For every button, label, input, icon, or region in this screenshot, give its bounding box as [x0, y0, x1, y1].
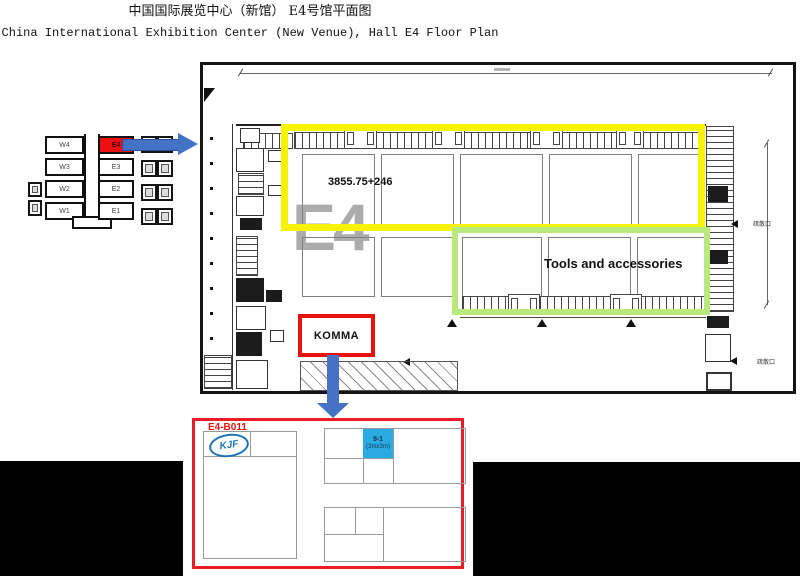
arrow-down-icon — [327, 355, 339, 405]
highlight-rect-green — [452, 227, 710, 315]
up-triangle-icon — [447, 319, 457, 327]
service-room — [240, 128, 260, 143]
zone-label: Tools and accessories — [544, 256, 683, 271]
exit-label: 疏散口 — [757, 357, 775, 366]
service-room — [266, 290, 282, 302]
column-dot — [210, 187, 213, 190]
column-dot — [210, 287, 213, 290]
highlighted-booth-size: (3mx3m) — [366, 444, 390, 451]
service-room — [236, 306, 266, 330]
column-dot — [210, 337, 213, 340]
detail-cell-divider — [393, 429, 394, 483]
arrow-down-icon — [317, 403, 349, 418]
service-room — [236, 148, 264, 172]
detail-cell-divider — [325, 534, 383, 535]
service-room — [705, 334, 731, 362]
service-room — [708, 186, 728, 202]
column-dot — [210, 212, 213, 215]
detail-cell-divider — [250, 432, 251, 456]
column-dot — [210, 312, 213, 315]
service-room — [270, 330, 284, 342]
service-room — [707, 316, 729, 328]
page: { "title": { "zh": "中国国际展览中心（新馆） E4号馆平面图… — [0, 0, 800, 576]
detail-bottom-block — [324, 507, 466, 562]
service-room — [706, 372, 732, 391]
service-room — [236, 332, 262, 356]
area-note: 3855.75+246 — [328, 176, 393, 188]
detail-cell-divider — [355, 508, 356, 534]
arrow-right-icon — [122, 139, 180, 151]
dimension-text — [494, 68, 510, 71]
dimension-line-top — [240, 73, 772, 74]
booth-cell — [302, 237, 375, 297]
service-room — [238, 173, 264, 195]
service-room — [236, 360, 268, 389]
column-dot — [210, 137, 213, 140]
detail-top-block: 9-1 (3mx3m) — [324, 428, 466, 484]
hatched-area — [300, 361, 458, 391]
komma-booth-label: KOMMA — [314, 330, 359, 342]
detail-cell-divider — [325, 458, 393, 459]
service-room — [708, 250, 728, 264]
corner-wedge-icon — [204, 88, 215, 102]
service-room — [204, 355, 232, 389]
detail-cell-divider — [383, 508, 384, 561]
column-dot — [210, 237, 213, 240]
column-dot — [210, 162, 213, 165]
service-room — [236, 196, 264, 216]
redaction-block-right — [473, 462, 800, 576]
detail-left-block: KJF — [203, 431, 297, 559]
booth-cell — [381, 237, 456, 297]
up-triangle-icon — [537, 319, 547, 327]
right-service-strip — [706, 126, 734, 312]
exit-arrow-icon — [730, 357, 737, 365]
komma-booth-marker: KOMMA — [298, 314, 375, 357]
service-room — [268, 185, 282, 196]
arrow-right-icon — [178, 133, 198, 155]
inner-wall-south — [460, 317, 706, 318]
column-dot — [210, 262, 213, 265]
inner-wall-left — [232, 124, 233, 390]
exhibitor-logo-text: KJF — [219, 439, 239, 453]
service-room — [240, 218, 262, 230]
service-room — [236, 278, 264, 302]
redaction-block-left — [0, 461, 183, 576]
exit-label: 疏散口 — [753, 219, 771, 228]
highlighted-booth-id: 9-1 — [373, 436, 383, 444]
booth-detail-panel: E4-B011 KJF 9-1 (3mx3m) — [192, 418, 464, 569]
highlighted-booth-cell: 9-1 (3mx3m) — [363, 429, 393, 458]
exit-arrow-icon — [731, 220, 738, 228]
stairs — [236, 236, 258, 276]
up-triangle-icon — [626, 319, 636, 327]
